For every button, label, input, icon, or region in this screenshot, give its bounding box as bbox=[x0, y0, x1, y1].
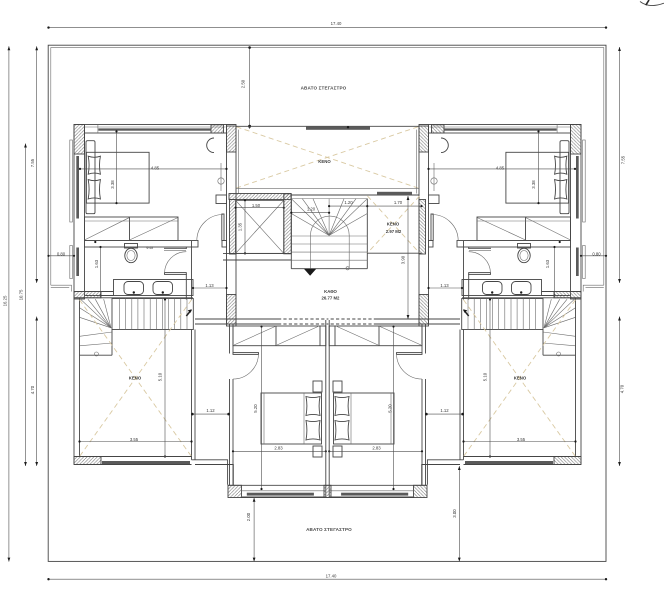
svg-text:3.55: 3.55 bbox=[517, 437, 526, 442]
svg-text:3.00: 3.00 bbox=[452, 509, 457, 518]
svg-text:ΚΑΘΟ: ΚΑΘΟ bbox=[324, 289, 337, 294]
svg-text:4.70: 4.70 bbox=[30, 385, 35, 394]
svg-text:ΚΕΝΟ: ΚΕΝΟ bbox=[387, 222, 400, 227]
svg-text:10.75: 10.75 bbox=[19, 289, 24, 300]
svg-text:1.35: 1.35 bbox=[238, 222, 243, 231]
svg-text:7.55: 7.55 bbox=[30, 158, 35, 167]
svg-text:1.13: 1.13 bbox=[205, 283, 214, 288]
svg-text:2.83: 2.83 bbox=[274, 445, 283, 450]
svg-text:1.63: 1.63 bbox=[545, 259, 550, 268]
svg-text:1.12: 1.12 bbox=[440, 408, 449, 413]
svg-text:ΚΕΝΟ: ΚΕΝΟ bbox=[129, 376, 142, 381]
svg-text:1.12: 1.12 bbox=[206, 408, 215, 413]
svg-text:5.20: 5.20 bbox=[388, 404, 393, 413]
svg-text:16.25: 16.25 bbox=[2, 295, 7, 306]
svg-text:1.13: 1.13 bbox=[440, 283, 449, 288]
svg-text:ΑΒΑΤΟ ΣΤΕΓΑΣΤΡΟ: ΑΒΑΤΟ ΣΤΕΓΑΣΤΡΟ bbox=[301, 86, 347, 91]
svg-text:5.10: 5.10 bbox=[158, 372, 163, 381]
svg-text:4.85: 4.85 bbox=[496, 165, 505, 170]
svg-text:7.55: 7.55 bbox=[621, 155, 626, 164]
svg-text:1.20: 1.20 bbox=[307, 207, 316, 212]
svg-text:5.20: 5.20 bbox=[253, 404, 258, 413]
svg-text:2.50: 2.50 bbox=[240, 79, 245, 88]
svg-text:4.85: 4.85 bbox=[151, 165, 160, 170]
svg-text:ΑΒΑΤΟ ΣΤΕΓΑΣΤΡΟ: ΑΒΑΤΟ ΣΤΕΓΑΣΤΡΟ bbox=[306, 527, 352, 532]
svg-text:ΚΕΝΟ: ΚΕΝΟ bbox=[318, 159, 331, 164]
svg-text:2.00: 2.00 bbox=[246, 512, 251, 521]
svg-text:3.38: 3.38 bbox=[110, 180, 115, 189]
svg-text:1.70: 1.70 bbox=[394, 200, 403, 205]
svg-text:Φ.48: Φ.48 bbox=[146, 246, 153, 250]
svg-text:2.83: 2.83 bbox=[372, 445, 381, 450]
svg-text:4.70: 4.70 bbox=[620, 384, 625, 393]
svg-text:17.40: 17.40 bbox=[326, 574, 337, 579]
svg-text:1.50: 1.50 bbox=[252, 203, 261, 208]
svg-text:5.10: 5.10 bbox=[483, 372, 488, 381]
svg-text:3.55: 3.55 bbox=[130, 437, 139, 442]
svg-text:1.20: 1.20 bbox=[344, 200, 353, 205]
svg-text:ΚΕΝΟ: ΚΕΝΟ bbox=[514, 376, 527, 381]
svg-text:17.40: 17.40 bbox=[331, 21, 342, 26]
svg-text:1.63: 1.63 bbox=[94, 259, 99, 268]
svg-text:26.77 Μ2: 26.77 Μ2 bbox=[322, 296, 341, 301]
svg-text:2.97 Μ2: 2.97 Μ2 bbox=[386, 229, 402, 234]
svg-text:3.38: 3.38 bbox=[531, 180, 536, 189]
svg-text:3.90: 3.90 bbox=[401, 255, 406, 264]
